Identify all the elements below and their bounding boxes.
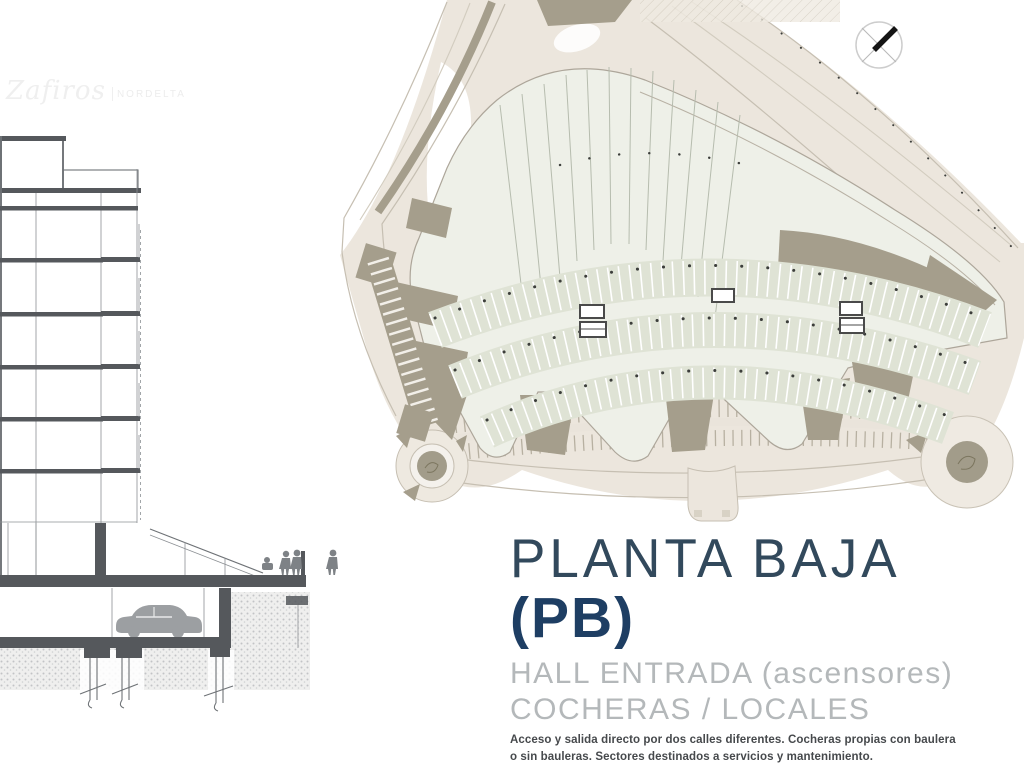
person-seated [262, 557, 273, 570]
plan-title: PLANTA BAJA [510, 531, 980, 586]
person-3 [326, 550, 338, 575]
driveway-foot-left [694, 510, 702, 517]
ground-hatch-bottom [0, 648, 310, 690]
car-silhouette [116, 605, 202, 638]
people-figures [262, 550, 338, 575]
tower-structure [0, 136, 141, 576]
north-arrow-icon [856, 22, 902, 68]
ground-floor-hall [8, 523, 263, 579]
person-1 [279, 551, 291, 575]
title-block: PLANTA BAJA (PB) HALL ENTRADA (ascensore… [510, 531, 980, 767]
roundabout-right-island [946, 441, 988, 483]
section-drawing [0, 136, 338, 711]
plan-description: Acceso y salida directo por dos calles d… [510, 732, 957, 767]
roof-structure [0, 136, 141, 193]
balconies [101, 224, 140, 473]
plaza-post [301, 551, 305, 575]
site-plan [340, 0, 1024, 521]
plaza-slab [0, 575, 306, 587]
person-2 [290, 550, 302, 575]
feature-line-2: COCHERAS / LOCALES [510, 693, 980, 727]
roundabout-left-island [417, 451, 447, 481]
neighbour-roof-hatch [640, 0, 840, 22]
plan-level-code: (PB) [510, 590, 980, 647]
driveway-foot-right [722, 510, 730, 517]
feature-line-1: HALL ENTRADA (ascensores) [510, 657, 980, 691]
page: Zafiros NORDELTA [0, 0, 1024, 768]
